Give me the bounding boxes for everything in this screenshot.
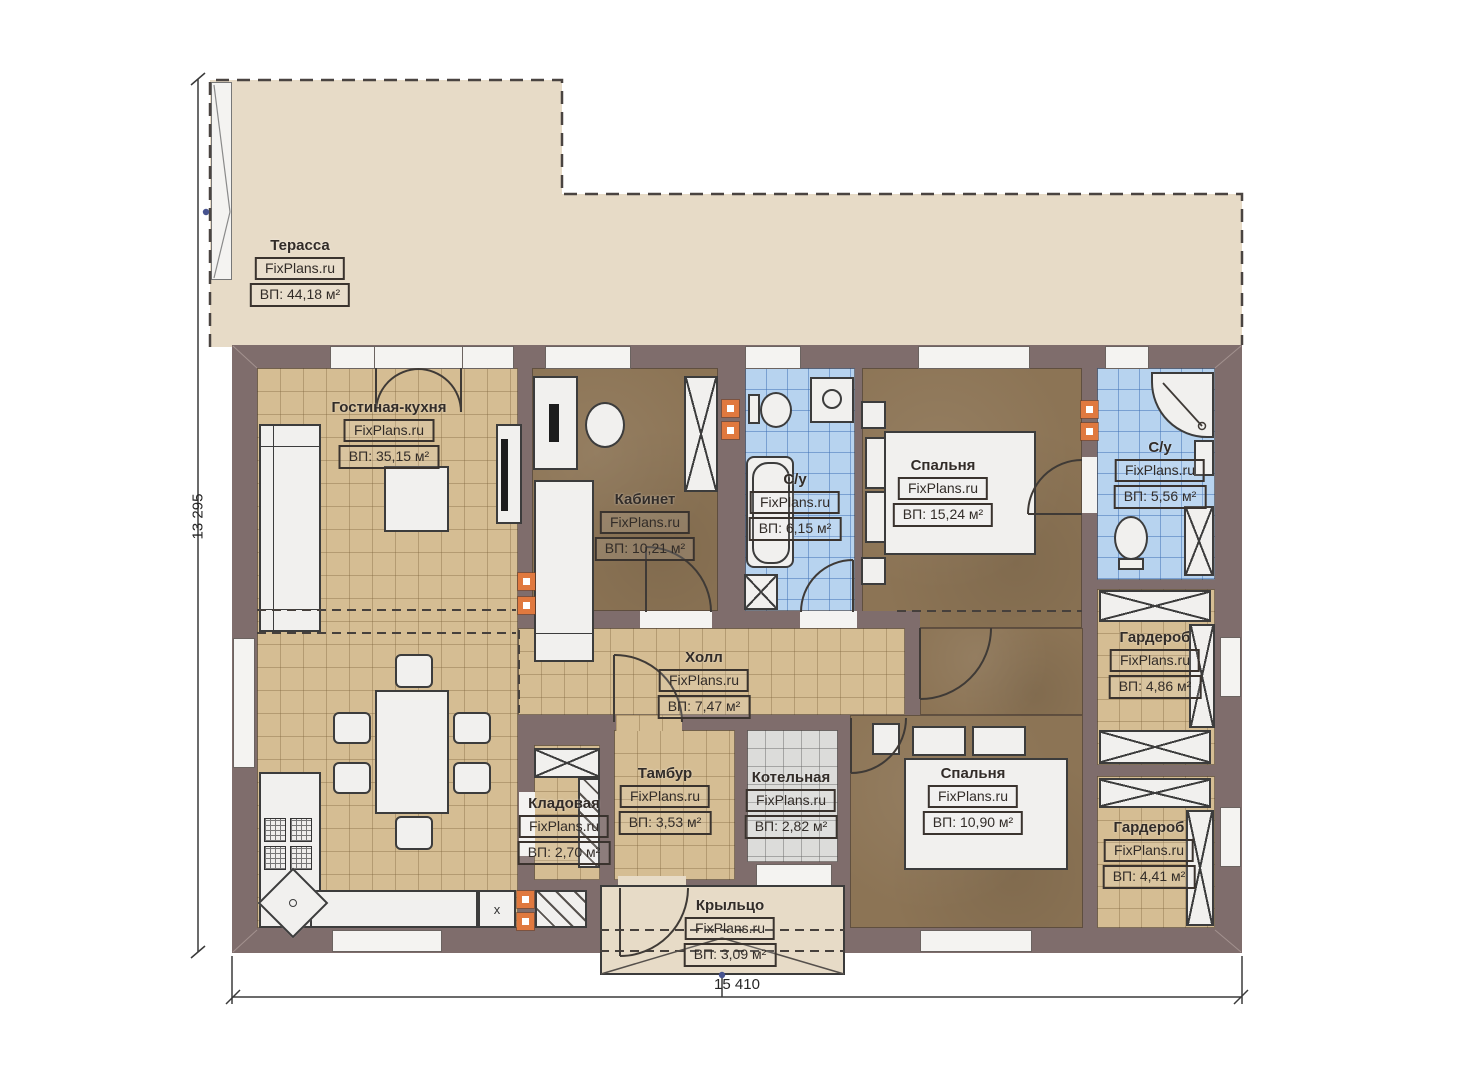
chair <box>395 816 433 850</box>
window <box>918 346 1030 369</box>
watermark: FixPlans.ru <box>750 491 840 515</box>
room-label-wardrobe2: Гардероб FixPlans.ru ВП: 4,41 м² <box>1103 820 1196 889</box>
monitor <box>549 404 559 442</box>
sofa <box>259 424 321 632</box>
room-label-bedroom2: Спальня FixPlans.ru ВП: 10,90 м² <box>923 766 1023 835</box>
nightstand <box>872 723 900 755</box>
window <box>233 638 255 768</box>
kitchen-counter-bottom <box>310 890 478 928</box>
room-area: ВП: 2,82 м² <box>745 815 838 839</box>
wall-segment <box>862 611 920 628</box>
vent-marker <box>517 913 534 930</box>
room-area: ВП: 3,53 м² <box>619 811 712 835</box>
room-label-tambour: Тамбур FixPlans.ru ВП: 3,53 м² <box>619 766 712 835</box>
room-label-wardrobe1: Гардероб FixPlans.ru ВП: 4,86 м² <box>1109 630 1202 699</box>
watermark: FixPlans.ru <box>898 477 988 501</box>
chair <box>333 712 371 744</box>
room-label-bedroom1: Спальня FixPlans.ru ВП: 15,24 м² <box>893 458 993 527</box>
wardrobe-cabinet <box>1099 730 1211 764</box>
pantry-shelf <box>534 748 600 778</box>
watermark: FixPlans.ru <box>519 815 609 839</box>
chair <box>395 654 433 688</box>
chair <box>453 762 491 794</box>
terrace-door-threshold <box>374 346 463 369</box>
room-name: Холл <box>685 650 723 666</box>
stove-burner <box>290 818 312 842</box>
toilet-tank <box>1118 558 1144 570</box>
vent-marker <box>517 891 534 908</box>
window <box>545 346 631 369</box>
window <box>745 346 801 369</box>
room-label-hall: Холл FixPlans.ru ВП: 7,47 м² <box>658 650 751 719</box>
toilet <box>760 392 792 428</box>
room-area: ВП: 4,41 м² <box>1103 865 1196 889</box>
chair <box>453 712 491 744</box>
room-name: Кабинет <box>615 492 676 508</box>
room-name: Гардероб <box>1120 630 1191 646</box>
watermark: FixPlans.ru <box>1104 839 1194 863</box>
ottoman <box>384 466 449 532</box>
vent-marker <box>722 400 739 417</box>
window <box>1220 637 1241 697</box>
watermark: FixPlans.ru <box>600 511 690 535</box>
door-opening-bath1 <box>800 611 857 628</box>
cabinet <box>535 890 587 928</box>
room-area: ВП: 6,15 м² <box>749 517 842 541</box>
vent-marker <box>722 422 739 439</box>
vent-marker <box>1081 423 1098 440</box>
terrace-floor <box>210 80 562 347</box>
room-name: Гардероб <box>1114 820 1185 836</box>
window <box>462 346 514 369</box>
terrace-pillar <box>211 82 232 280</box>
nightstand <box>861 557 886 585</box>
room-name: Тамбур <box>638 766 692 782</box>
dining-table <box>375 690 449 814</box>
room-label-living: Гостиная-кухня FixPlans.ru ВП: 35,15 м² <box>332 400 447 469</box>
room-area: ВП: 10,21 м² <box>595 537 695 561</box>
room-name: Гостиная-кухня <box>332 400 447 416</box>
window <box>1220 807 1241 867</box>
wardrobe-cabinet <box>1099 778 1211 808</box>
dimension-width-label: 15 410 <box>697 976 777 993</box>
room-label-office: Кабинет FixPlans.ru ВП: 10,21 м² <box>595 492 695 561</box>
window <box>1105 346 1149 369</box>
room-area: ВП: 10,90 м² <box>923 811 1023 835</box>
room-label-pantry: Кладовая FixPlans.ru ВП: 2,70 м² <box>518 796 611 865</box>
room-area: ВП: 44,18 м² <box>250 283 350 307</box>
watermark: FixPlans.ru <box>620 785 710 809</box>
dishwasher-mark: x <box>478 890 516 928</box>
window <box>330 346 376 369</box>
stove-burner <box>290 846 312 870</box>
toilet-tank <box>748 394 760 424</box>
vent-marker <box>1081 401 1098 418</box>
stove-burner <box>264 818 286 842</box>
stove-burner <box>264 846 286 870</box>
wardrobe-cabinet <box>684 376 718 492</box>
watermark: FixPlans.ru <box>928 785 1018 809</box>
vent-marker <box>518 597 535 614</box>
vent-marker <box>518 573 535 590</box>
single-bed <box>534 480 594 662</box>
room-floor-bedroom2-upper <box>920 628 1083 715</box>
room-name: Терасса <box>270 238 329 254</box>
toilet <box>1114 516 1148 560</box>
room-area: ВП: 4,86 м² <box>1109 675 1202 699</box>
door-opening-office <box>640 611 712 628</box>
room-area: ВП: 5,56 м² <box>1114 485 1207 509</box>
room-label-terrace: Терасса FixPlans.ru ВП: 44,18 м² <box>250 238 350 307</box>
room-label-bath2: С/у FixPlans.ru ВП: 5,56 м² <box>1114 440 1207 509</box>
terrace-floor-right <box>560 194 1242 347</box>
watermark: FixPlans.ru <box>746 789 836 813</box>
office-chair <box>585 402 625 448</box>
marker-dot <box>203 209 209 215</box>
room-area: ВП: 7,47 м² <box>658 695 751 719</box>
room-name: Спальня <box>911 458 976 474</box>
room-area: ВП: 2,70 м² <box>518 841 611 865</box>
room-label-bath1: С/у FixPlans.ru ВП: 6,15 м² <box>749 472 842 541</box>
bath-cabinet <box>1184 506 1214 576</box>
watermark: FixPlans.ru <box>685 917 775 941</box>
room-area: ВП: 35,15 м² <box>339 445 439 469</box>
watermark: FixPlans.ru <box>659 669 749 693</box>
floor-plan: x <box>0 0 1473 1080</box>
washing-machine <box>810 377 854 423</box>
watermark: FixPlans.ru <box>1115 459 1205 483</box>
room-label-boiler: Котельная FixPlans.ru ВП: 2,82 м² <box>745 770 838 839</box>
room-name: Крыльцо <box>696 898 764 914</box>
room-name: Кладовая <box>528 796 600 812</box>
room-name: С/у <box>783 472 806 488</box>
room-name: Спальня <box>941 766 1006 782</box>
window <box>332 930 442 952</box>
nightstand <box>861 401 886 429</box>
chair <box>333 762 371 794</box>
room-area: ВП: 15,24 м² <box>893 503 993 527</box>
tv <box>501 439 508 511</box>
tv-stand <box>496 424 522 524</box>
dimension-height-label: 13 295 <box>190 457 207 577</box>
room-label-porch: Крыльцо FixPlans.ru ВП: 3,09 м² <box>684 898 777 967</box>
window <box>920 930 1032 952</box>
pillow <box>912 726 966 756</box>
watermark: FixPlans.ru <box>344 419 434 443</box>
room-area: ВП: 3,09 м² <box>684 943 777 967</box>
wardrobe-cabinet <box>1099 590 1211 622</box>
pillow <box>972 726 1026 756</box>
watermark: FixPlans.ru <box>255 257 345 281</box>
door-opening-bath2 <box>1082 457 1097 513</box>
room-name: Котельная <box>752 770 831 786</box>
watermark: FixPlans.ru <box>1110 649 1200 673</box>
room-name: С/у <box>1148 440 1171 456</box>
bath-cabinet <box>744 574 778 610</box>
